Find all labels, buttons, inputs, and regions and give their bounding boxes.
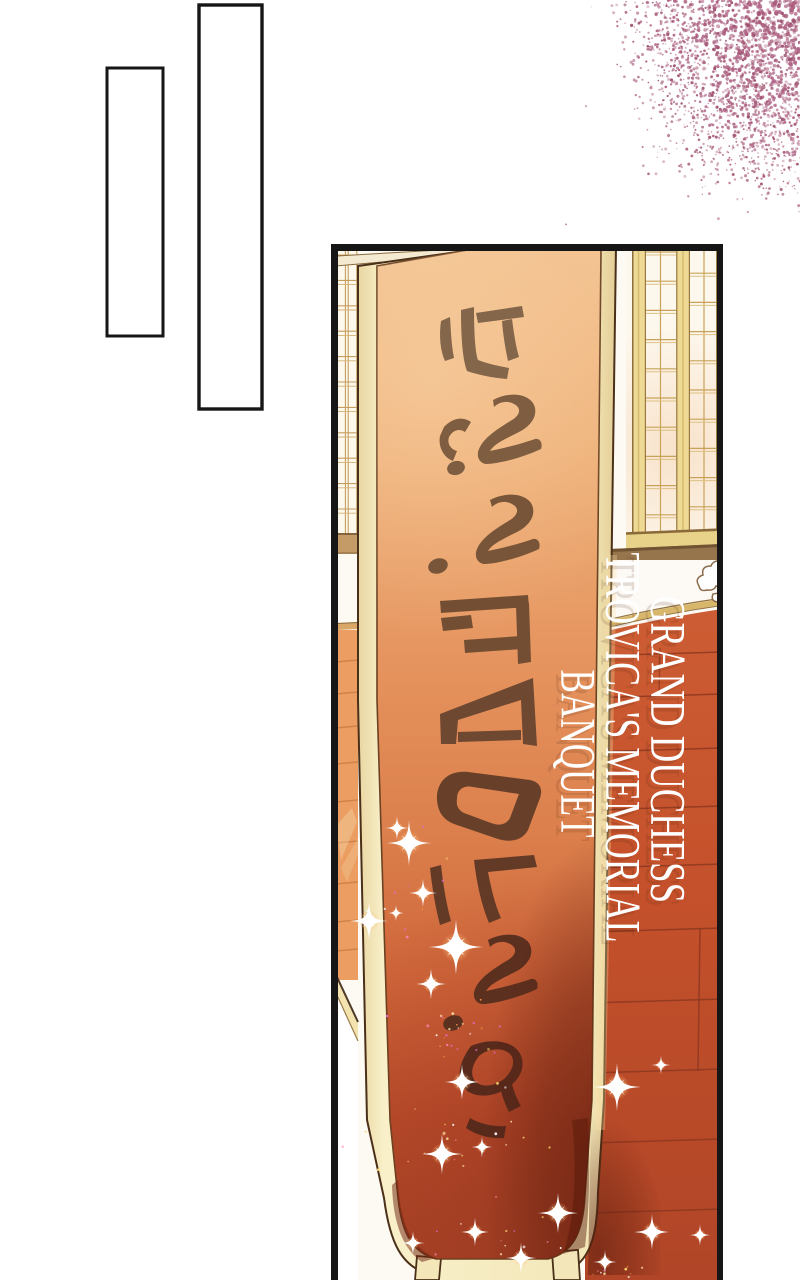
svg-text:BANQUET: BANQUET — [551, 670, 607, 838]
